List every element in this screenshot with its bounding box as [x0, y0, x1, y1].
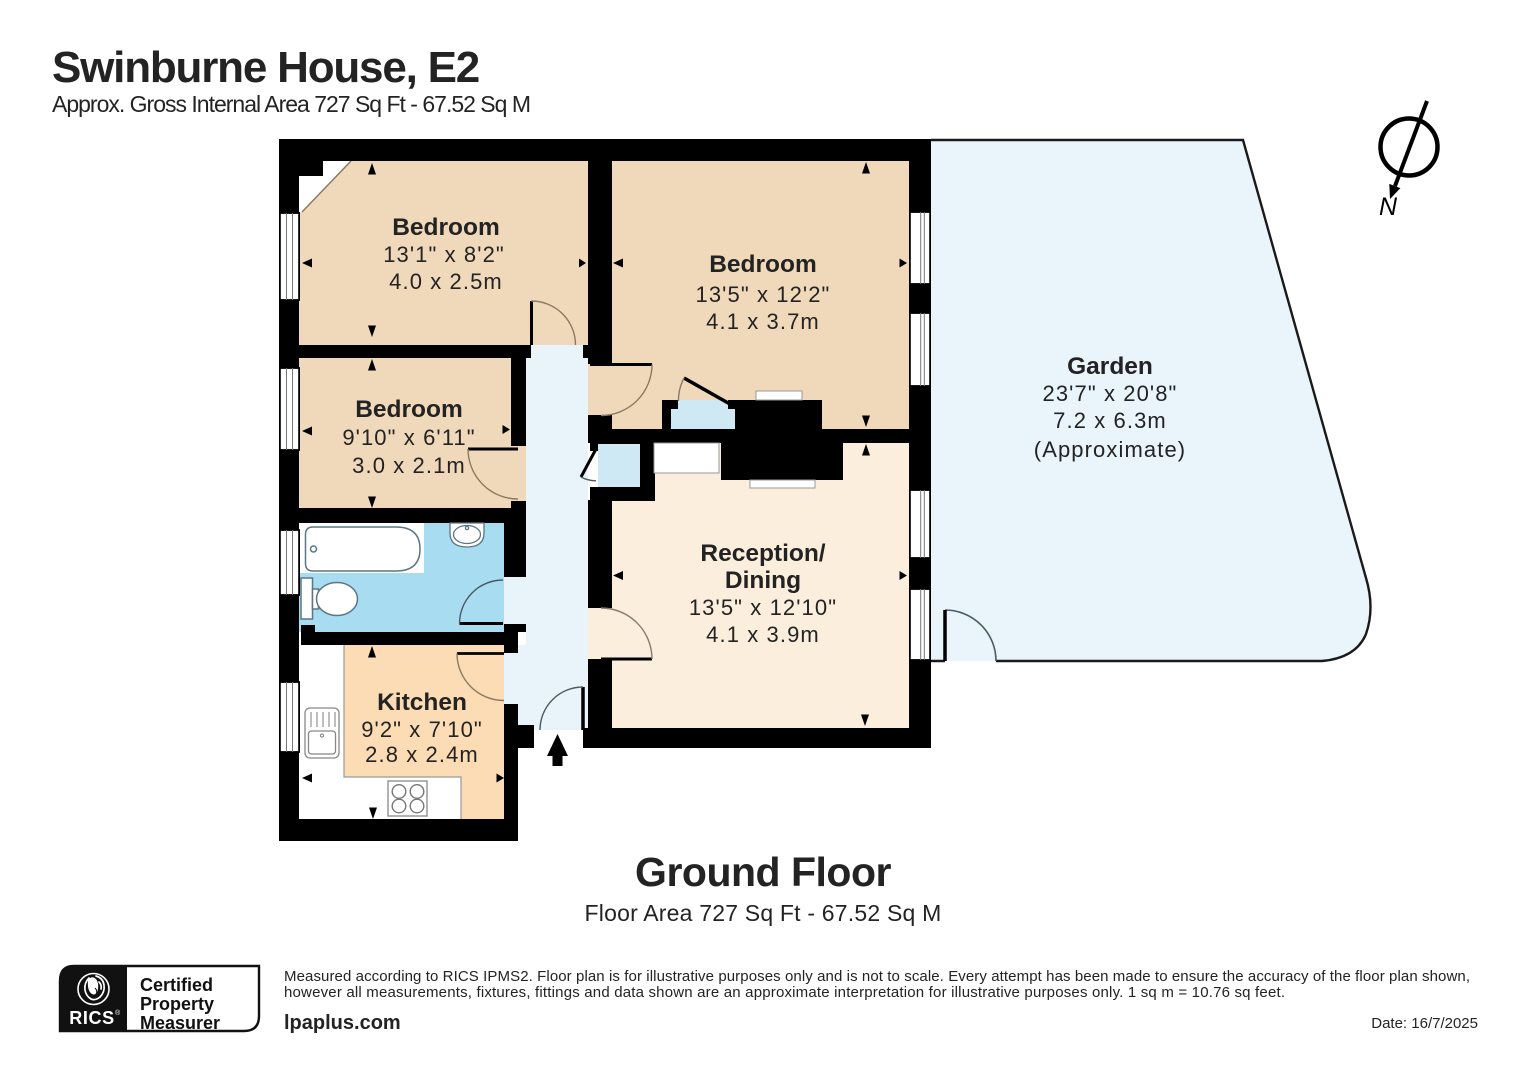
svg-text:Dining: Dining — [725, 567, 801, 594]
svg-text:Property: Property — [140, 994, 214, 1014]
svg-text:®: ® — [115, 1009, 121, 1017]
svg-text:lpaplus.com: lpaplus.com — [284, 1012, 401, 1034]
svg-text:RICS: RICS — [69, 1008, 114, 1028]
svg-text:2.8 x 2.4m: 2.8 x 2.4m — [365, 742, 479, 767]
svg-text:Bedroom: Bedroom — [355, 396, 463, 423]
svg-text:3.0 x 2.1m: 3.0 x 2.1m — [352, 453, 466, 478]
svg-text:Ground Floor: Ground Floor — [635, 849, 891, 895]
svg-text:Bedroom: Bedroom — [709, 251, 817, 278]
svg-text:4.1 x 3.7m: 4.1 x 3.7m — [706, 309, 820, 334]
svg-text:Date: 16/7/2025: Date: 16/7/2025 — [1371, 1015, 1478, 1032]
svg-text:Garden: Garden — [1067, 353, 1153, 380]
svg-text:N: N — [1379, 193, 1398, 221]
svg-text:4.0 x 2.5m: 4.0 x 2.5m — [389, 269, 503, 294]
svg-text:Approx. Gross Internal Area 72: Approx. Gross Internal Area 727 Sq Ft - … — [52, 91, 530, 117]
svg-text:Reception/: Reception/ — [700, 540, 825, 567]
svg-text:13'5" x 12'2": 13'5" x 12'2" — [696, 282, 831, 307]
svg-text:9'2" x 7'10": 9'2" x 7'10" — [361, 717, 483, 742]
svg-text:Certified: Certified — [140, 975, 213, 995]
svg-text:4.1 x 3.9m: 4.1 x 3.9m — [706, 622, 820, 647]
svg-text:Swinburne House, E2: Swinburne House, E2 — [52, 43, 479, 92]
svg-text:23'7" x 20'8": 23'7" x 20'8" — [1043, 381, 1178, 406]
svg-text:Measured according to RICS IPM: Measured according to RICS IPMS2. Floor … — [284, 968, 1470, 985]
svg-text:Kitchen: Kitchen — [377, 689, 467, 716]
svg-text:9'10" x 6'11": 9'10" x 6'11" — [342, 425, 475, 450]
svg-text:(Approximate): (Approximate) — [1034, 437, 1186, 462]
svg-text:7.2 x 6.3m: 7.2 x 6.3m — [1053, 408, 1167, 433]
svg-text:Floor Area 727 Sq Ft - 67.52 S: Floor Area 727 Sq Ft - 67.52 Sq M — [585, 900, 942, 926]
svg-text:however all measurements, fixt: however all measurements, fixtures, fitt… — [284, 984, 1285, 1001]
svg-text:13'1" x 8'2": 13'1" x 8'2" — [383, 242, 505, 267]
svg-text:13'5" x 12'10": 13'5" x 12'10" — [689, 595, 837, 620]
svg-text:Bedroom: Bedroom — [392, 214, 500, 241]
svg-text:Measurer: Measurer — [140, 1013, 220, 1033]
